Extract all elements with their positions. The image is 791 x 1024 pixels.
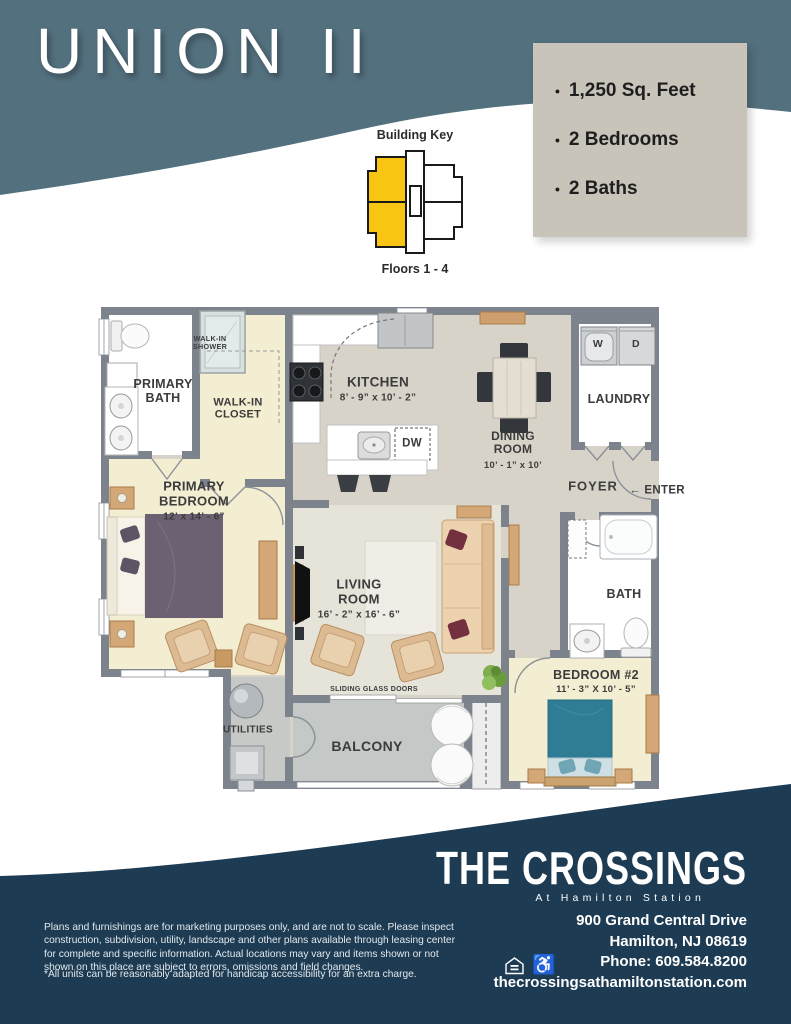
- brand-name: THE CROSSINGS: [436, 842, 747, 896]
- disclaimer-text: Plans and furnishings are for marketing …: [44, 921, 462, 975]
- enter-text: ENTER: [644, 485, 684, 497]
- sideboard: [480, 312, 525, 324]
- bedroom2-dims: 11’ - 3” X 10’ - 5”: [553, 685, 639, 696]
- info-sqft: 1,250 Sq. Feet: [569, 80, 696, 102]
- label-dining-room: DINING ROOM 10’ - 1” x 10’: [484, 430, 542, 470]
- dresser: [646, 695, 659, 753]
- dining-chair: [500, 343, 528, 359]
- side-table: [215, 650, 232, 667]
- label-walk-in-closet: WALK-IN CLOSET: [207, 397, 269, 422]
- accessibility-icon: ♿: [532, 956, 556, 975]
- bullet-icon: •: [555, 83, 560, 99]
- speaker: [295, 627, 304, 640]
- toilet-tank: [111, 321, 122, 351]
- toilet-icon: [121, 324, 149, 348]
- dining-table: [493, 358, 536, 418]
- water-heater: [229, 684, 263, 718]
- floor-plan: WALK-IN SHOWER PRIMARY BATH WALK-IN CLOS…: [97, 303, 663, 795]
- label-foyer: FOYER: [568, 480, 618, 495]
- building-key: Building Key Floors 1 - 4: [340, 128, 490, 276]
- label-sliding-glass-doors: SLIDING GLASS DOORS: [330, 686, 418, 694]
- label-dryer: D: [632, 339, 640, 351]
- label-bath: BATH: [607, 587, 642, 601]
- toilet-icon: [624, 618, 648, 648]
- linen-closet: [568, 520, 586, 558]
- address-line: Hamilton, NJ 08619: [494, 932, 747, 953]
- label-laundry: LAUNDRY: [588, 392, 651, 406]
- dining-name: DINING ROOM: [487, 430, 539, 457]
- building-key-title: Building Key: [340, 128, 490, 142]
- enter-arrow-icon: ←: [629, 485, 641, 497]
- label-kitchen: KITCHEN 8’ - 9” x 10’ - 2”: [340, 374, 417, 403]
- brand-logo: THE CROSSINGS At Hamilton Station: [436, 842, 747, 904]
- info-item-bedrooms: • 2 Bedrooms: [555, 129, 747, 151]
- kitchen-dims: 8’ - 9” x 10’ - 2”: [340, 392, 417, 403]
- living-room-name: LIVING ROOM: [333, 577, 385, 606]
- tv: [295, 561, 310, 625]
- label-bedroom2: BEDROOM #2 11’ - 3” X 10’ - 5”: [553, 668, 639, 696]
- primary-bedroom-name: PRIMARY BEDROOM: [155, 479, 233, 508]
- info-baths: 2 Baths: [569, 178, 638, 200]
- primary-bedroom-dims: 12’ x 14’ - 6”: [155, 511, 233, 522]
- info-item-sqft: • 1,250 Sq. Feet: [555, 80, 747, 102]
- patio-chair: [431, 704, 473, 746]
- flyer-page: UNION II Building Key Floors 1 - 4 • 1,2…: [0, 0, 791, 1024]
- address-block: 900 Grand Central Drive Hamilton, NJ 086…: [494, 911, 747, 993]
- bullet-icon: •: [555, 181, 560, 197]
- label-living-room: LIVING ROOM 16’ - 2” x 16’ - 6”: [318, 577, 400, 620]
- counter-top: [293, 315, 380, 345]
- kitchen-name: KITCHEN: [340, 374, 417, 389]
- island: [327, 460, 427, 475]
- info-item-baths: • 2 Baths: [555, 178, 747, 200]
- label-utilities: UTILITIES: [223, 724, 273, 735]
- hall-console: [509, 525, 519, 585]
- address-line: 900 Grand Central Drive: [494, 911, 747, 932]
- info-box: • 1,250 Sq. Feet • 2 Bedrooms • 2 Baths: [533, 43, 747, 237]
- dresser: [259, 541, 277, 619]
- footer-icons: ♿: [505, 956, 556, 975]
- label-balcony: BALCONY: [331, 739, 402, 755]
- building-key-floors: Floors 1 - 4: [340, 262, 490, 276]
- sofa-table: [457, 506, 491, 518]
- speaker: [295, 546, 304, 559]
- equal-housing-icon: [505, 957, 524, 975]
- footnote-text: *All units can be reasonably adapted for…: [44, 969, 417, 980]
- dining-chair: [477, 372, 495, 402]
- info-bedrooms: 2 Bedrooms: [569, 129, 679, 151]
- sliding-door-panel: [396, 699, 462, 704]
- dining-dims: 10’ - 1” x 10’: [484, 460, 542, 470]
- bed-blanket: [145, 514, 223, 618]
- bullet-icon: •: [555, 132, 560, 148]
- label-primary-bath: PRIMARY BATH: [128, 377, 198, 405]
- label-washer: W: [593, 339, 603, 351]
- bedroom2-name: BEDROOM #2: [553, 668, 639, 682]
- living-room-dims: 16’ - 2” x 16’ - 6”: [318, 609, 400, 620]
- building-key-diagram: [359, 148, 471, 256]
- label-walk-in-shower: WALK-IN SHOWER: [188, 335, 232, 351]
- label-dishwasher: DW: [402, 438, 422, 451]
- toilet-tank: [621, 648, 651, 657]
- headboard: [107, 517, 117, 615]
- page-title: UNION II: [36, 14, 376, 88]
- label-enter: ← ENTER: [629, 485, 685, 498]
- key-elevator: [410, 186, 421, 216]
- label-primary-bedroom: PRIMARY BEDROOM 12’ x 14’ - 6”: [155, 479, 233, 522]
- sliding-door-panel: [330, 695, 396, 700]
